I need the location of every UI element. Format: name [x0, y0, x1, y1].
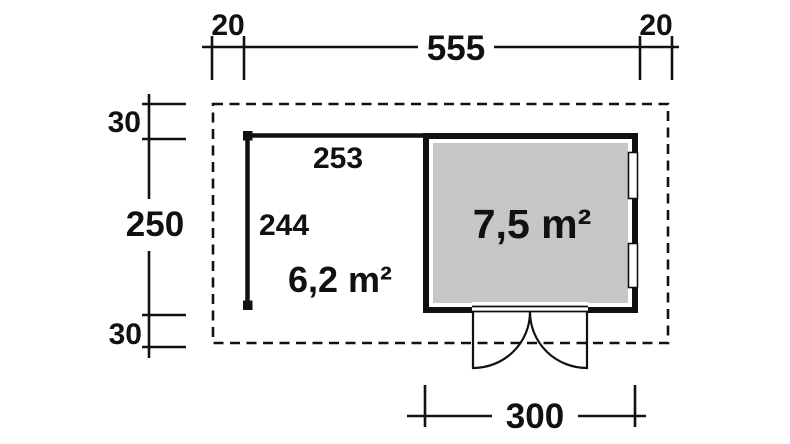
dim-label-interior-width: 253	[313, 142, 363, 175]
dim-label-left-top-overhang: 30	[108, 106, 141, 139]
dim-label-total-width: 555	[427, 29, 485, 68]
dim-label-left-bottom-overhang: 30	[109, 318, 142, 351]
corner-post-bottom	[243, 301, 253, 311]
open-area-label: 6,2 m²	[288, 259, 392, 300]
dim-label-total-depth: 250	[126, 205, 184, 244]
floor-plan-drawing: 20 555 20 30 250 30	[0, 0, 790, 444]
door-leaf-left	[473, 312, 530, 368]
dim-label-door-width: 300	[506, 397, 564, 436]
door-leaf-right	[530, 312, 587, 368]
double-door	[473, 312, 587, 368]
dim-label-top-left-overhang: 20	[211, 9, 244, 42]
dim-label-top-right-overhang: 20	[639, 9, 672, 42]
floor-plan-svg: 20 555 20 30 250 30	[0, 0, 790, 444]
dim-label-interior-depth: 244	[259, 209, 309, 242]
corner-post-top	[243, 131, 253, 141]
window-lower	[629, 244, 638, 288]
window-upper	[629, 153, 638, 199]
room-area-label: 7,5 m²	[473, 201, 592, 247]
